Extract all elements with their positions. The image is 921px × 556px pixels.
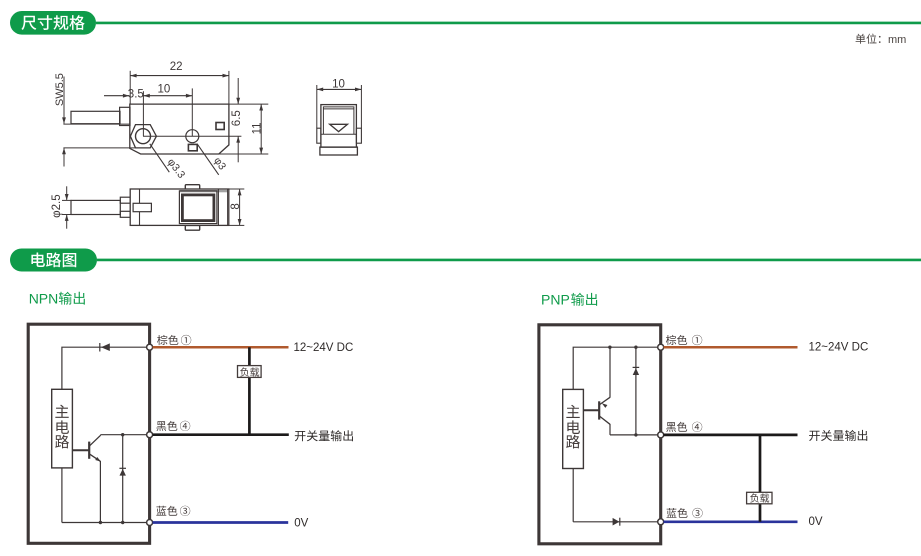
svg-text:3.5: 3.5 bbox=[128, 88, 144, 100]
svg-text:10: 10 bbox=[158, 84, 171, 96]
svg-text:11: 11 bbox=[251, 122, 263, 134]
svg-text:φ2.5: φ2.5 bbox=[51, 194, 63, 217]
svg-text:6.5: 6.5 bbox=[231, 110, 243, 126]
svg-text:22: 22 bbox=[170, 61, 183, 73]
svg-text:0V: 0V bbox=[809, 516, 823, 528]
svg-text:10: 10 bbox=[332, 78, 345, 90]
svg-text:8: 8 bbox=[230, 203, 242, 209]
svg-text:PNP: PNP bbox=[541, 292, 570, 308]
svg-text:φ3: φ3 bbox=[211, 155, 228, 172]
svg-text:mm: mm bbox=[888, 34, 906, 46]
svg-text:0V: 0V bbox=[294, 517, 308, 529]
svg-text:NPN: NPN bbox=[29, 291, 59, 307]
svg-text:12~24V DC: 12~24V DC bbox=[294, 342, 354, 354]
svg-text:φ3.3: φ3.3 bbox=[165, 156, 188, 180]
svg-text:12~24V DC: 12~24V DC bbox=[809, 342, 869, 354]
